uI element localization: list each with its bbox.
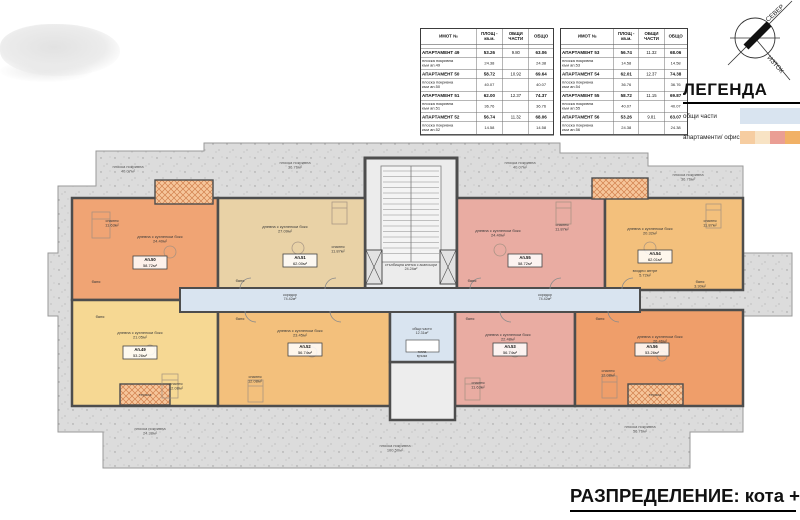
table-cell: АПАРТАМЕНТ 51: [421, 92, 476, 101]
table-cell: плоска покривнакъм ап.53: [561, 58, 614, 71]
corridor-label: коридор74.42м²: [283, 293, 297, 301]
apartment-row: АПАРТАМЕНТ 5653.269.8163.07: [561, 113, 687, 122]
table-cell: 68.06: [664, 49, 687, 58]
table-cell: 14.58: [476, 122, 502, 135]
table-header-cell: ПЛОЩ - кв.м.: [614, 29, 639, 45]
apartment-row: АПАРТАМЕНТ 5356.7411.3268.06: [561, 49, 687, 58]
table-cell: АПАРТАМЕНТ 54: [561, 70, 614, 79]
table-header-row: ИМОТ №ПЛОЩ - кв.м.ОБЩИ ЧАСТИОБЩО: [421, 29, 553, 45]
north-needle: [746, 24, 769, 47]
room-label: спалня11.63м²: [471, 380, 485, 390]
table-cell: 11.32: [639, 49, 664, 58]
table-cell: АПАРТАМЕНТ 50: [421, 70, 476, 79]
table-cell: 74.37: [529, 92, 553, 101]
table-cell: 58.72: [476, 70, 502, 79]
table-cell: плоска покривнакъм ап.55: [561, 101, 614, 114]
unit-id-label: Ап.50: [144, 257, 156, 262]
corridor-label: коридор74.42м²: [538, 293, 552, 301]
unit-area-label: 53.26м²: [133, 353, 148, 358]
roof-row: плоска покривнакъм ап.5040.0740.07: [421, 79, 553, 92]
table-header-cell: ИМОТ №: [421, 29, 476, 45]
table-cell: АПАРТАМЕНТ 52: [421, 113, 476, 122]
room-label: спалня12.08м²: [169, 381, 184, 391]
unit-area-label: 56.74м²: [298, 350, 313, 355]
unit-ap52: [218, 310, 390, 406]
room-label: баня: [236, 278, 245, 283]
room-label: спалня11.87м²: [331, 244, 345, 254]
unit-area-label: 53.26м²: [645, 350, 660, 355]
hatched-terrace: [155, 180, 213, 204]
roof-row: плоска покривнакъм ап.5436.7636.76: [561, 79, 687, 92]
elevator-right: [440, 250, 456, 284]
unit-id-label: Ап.53: [504, 344, 516, 349]
table-cell: 24.38: [614, 122, 639, 135]
table-cell: 24.38: [476, 58, 502, 71]
table-cell: АПАРТАМЕНТ 55: [561, 92, 614, 101]
table-cell: 62.01: [614, 70, 639, 79]
unit-area-label: 58.72м²: [143, 263, 158, 268]
room-label: баня: [96, 314, 105, 319]
compass-north-label: СЕВЕР: [765, 4, 786, 24]
table-cell: [503, 122, 529, 135]
table-cell: 12.37: [639, 70, 664, 79]
legend-title: ЛЕГЕНДА: [683, 80, 800, 104]
room-label: баня: [466, 316, 475, 321]
table-cell: 11.32: [503, 113, 529, 122]
table-cell: 68.06: [529, 113, 553, 122]
unit-area-label: 56.74м²: [503, 350, 518, 355]
compass-east-label: ИЗТОК: [766, 55, 785, 75]
table-cell: 40.07: [529, 79, 553, 92]
room-label: спалня11.87м²: [555, 222, 569, 232]
table-cell: 36.76: [614, 79, 639, 92]
legend: ЛЕГЕНДА общи части апартаменти/ офиси: [683, 80, 800, 146]
table-header-cell: ПЛОЩ - кв.м.: [476, 29, 502, 45]
area-table-right: ИМОТ №ПЛОЩ - кв.м.ОБЩИ ЧАСТИОБЩОАПАРТАМЕ…: [560, 28, 687, 136]
legend-label-apartments: апартаменти/ офиси: [683, 134, 743, 141]
north-compass: СЕВЕР ИЗТОК: [700, 0, 800, 92]
table-cell: плоска покривнакъм ап.56: [561, 122, 614, 135]
table-header-cell: ОБЩИ ЧАСТИ: [639, 29, 664, 45]
table-cell: 69.64: [529, 70, 553, 79]
apartment-row: АПАРТАМЕНТ 5058.7210.9269.64: [421, 70, 553, 79]
table-cell: 56.74: [476, 113, 502, 122]
unit-id-label: Ап.52: [299, 344, 311, 349]
unit-area-label: 62.00м²: [293, 261, 308, 266]
unit-ap55: [457, 198, 605, 290]
table-cell: 62.00: [476, 92, 502, 101]
warm-link-label: топлавръзка: [417, 350, 427, 358]
table-cell: 36.76: [476, 101, 502, 114]
unit-ap54: [605, 198, 743, 290]
table-cell: 12.37: [503, 92, 529, 101]
table-cell: [639, 122, 664, 135]
unit-id-label: Ап.54: [649, 251, 661, 256]
table-header-row: ИМОТ №ПЛОЩ - кв.м.ОБЩИ ЧАСТИОБЩО: [561, 29, 687, 45]
lobby-south: [390, 362, 455, 420]
roof-row: плоска покривнакъм ап.5136.7636.76: [421, 101, 553, 114]
table-cell: 9.81: [639, 113, 664, 122]
table-cell: [639, 79, 664, 92]
legend-row-common: общи части: [683, 107, 800, 125]
legend-label-common: общи части: [683, 113, 717, 120]
unit-area-label: 62.01м²: [648, 257, 663, 262]
table-cell: 63.06: [529, 49, 553, 58]
table-cell: 40.07: [476, 79, 502, 92]
table-cell: плоска покривнакъм ап.54: [561, 79, 614, 92]
table-header-cell: ИМОТ №: [561, 29, 614, 45]
table-cell: 9.80: [503, 49, 529, 58]
table-cell: 53.26: [614, 113, 639, 122]
room-label: спалня12.08м²: [601, 368, 616, 378]
room-label: тераса: [649, 392, 662, 397]
table-cell: плоска покривнакъм ап.50: [421, 79, 476, 92]
apartment-row: АПАРТАМЕНТ 4953.269.8063.06: [421, 49, 553, 58]
table-header-cell: ОБЩИ ЧАСТИ: [503, 29, 529, 45]
table-cell: [639, 58, 664, 71]
unit-ap50: [72, 198, 218, 300]
table-cell: 74.38: [664, 70, 687, 79]
table-cell: 11.15: [639, 92, 664, 101]
unit-id-label: Ап.56: [646, 344, 658, 349]
table-cell: плоска покривнакъм ап.49: [421, 58, 476, 71]
unit-id-label: Ап.49: [134, 347, 146, 352]
table-cell: 14.58: [614, 58, 639, 71]
table-cell: 36.76: [529, 101, 553, 114]
table-cell: 56.74: [614, 49, 639, 58]
room-label: баня: [236, 316, 245, 321]
table-cell: 40.07: [614, 101, 639, 114]
room-label: баня: [92, 279, 101, 284]
table-cell: 53.26: [476, 49, 502, 58]
roof-row: плоска покривнакъм ап.4924.3824.38: [421, 58, 553, 71]
table-cell: АПАРТАМЕНТ 53: [561, 49, 614, 58]
room-label: баня: [468, 278, 477, 283]
room-label: спалня12.08м²: [248, 374, 263, 384]
apartment-row: АПАРТАМЕНТ 5256.7411.3268.06: [421, 113, 553, 122]
room-label: баня: [596, 316, 605, 321]
roof-row: плоска покривнакъм ап.5314.5814.58: [561, 58, 687, 71]
unit-id-label: Ап.51: [294, 255, 306, 260]
table-cell: 10.92: [503, 70, 529, 79]
unit-id-label: Ап.55: [519, 255, 531, 260]
room-label: спалня11.63м²: [105, 218, 119, 228]
apartment-row: АПАРТАМЕНТ 5162.0012.3774.37: [421, 92, 553, 101]
table-cell: плоска покривнакъм ап.51: [421, 101, 476, 114]
unit-area-label: 58.72м²: [518, 261, 533, 266]
table-cell: 14.58: [664, 58, 687, 71]
room-label: тераса: [139, 392, 152, 397]
table-cell: [503, 101, 529, 114]
drawing-sheet: спалня11.63м²дневна с кухненски бокс24.4…: [0, 0, 800, 520]
table-cell: 24.38: [529, 58, 553, 71]
table-cell: [639, 101, 664, 114]
table-cell: [503, 58, 529, 71]
apartment-row: АПАРТАМЕНТ 5462.0112.3774.38: [561, 70, 687, 79]
table-header-cell: ОБЩО: [529, 29, 553, 45]
room-label: спалня11.87м²: [703, 218, 717, 228]
legend-swatch-common-areas: [740, 108, 800, 124]
area-table-left: ИМОТ №ПЛОЩ - кв.м.ОБЩИ ЧАСТИОБЩОАПАРТАМЕ…: [420, 28, 553, 136]
table-cell: АПАРТАМЕНТ 49: [421, 49, 476, 58]
roof-row: плоска покривнакъм ап.5214.5814.58: [421, 122, 553, 135]
apartment-row: АПАРТАМЕНТ 5558.7211.1569.87: [561, 92, 687, 101]
unit-ap53: [455, 310, 575, 406]
table-cell: [503, 79, 529, 92]
table-cell: 58.72: [614, 92, 639, 101]
elevator-left: [366, 250, 382, 284]
roof-row: плоска покривнакъм ап.5624.3824.38: [561, 122, 687, 135]
legend-row-apartments: апартаменти/ офиси: [683, 128, 800, 146]
roof-row: плоска покривнакъм ап.5540.0740.07: [561, 101, 687, 114]
hatched-terrace: [592, 178, 648, 199]
legend-swatch-apartments: [740, 131, 800, 144]
table-cell: АПАРТАМЕНТ 56: [561, 113, 614, 122]
sheet-title: РАЗПРЕДЕЛЕНИЕ: кота +14.88: [570, 485, 796, 512]
table-cell: плоска покривнакъм ап.52: [421, 122, 476, 135]
table-header-cell: ОБЩО: [664, 29, 687, 45]
corridor: [180, 288, 640, 312]
table-cell: 14.58: [529, 122, 553, 135]
